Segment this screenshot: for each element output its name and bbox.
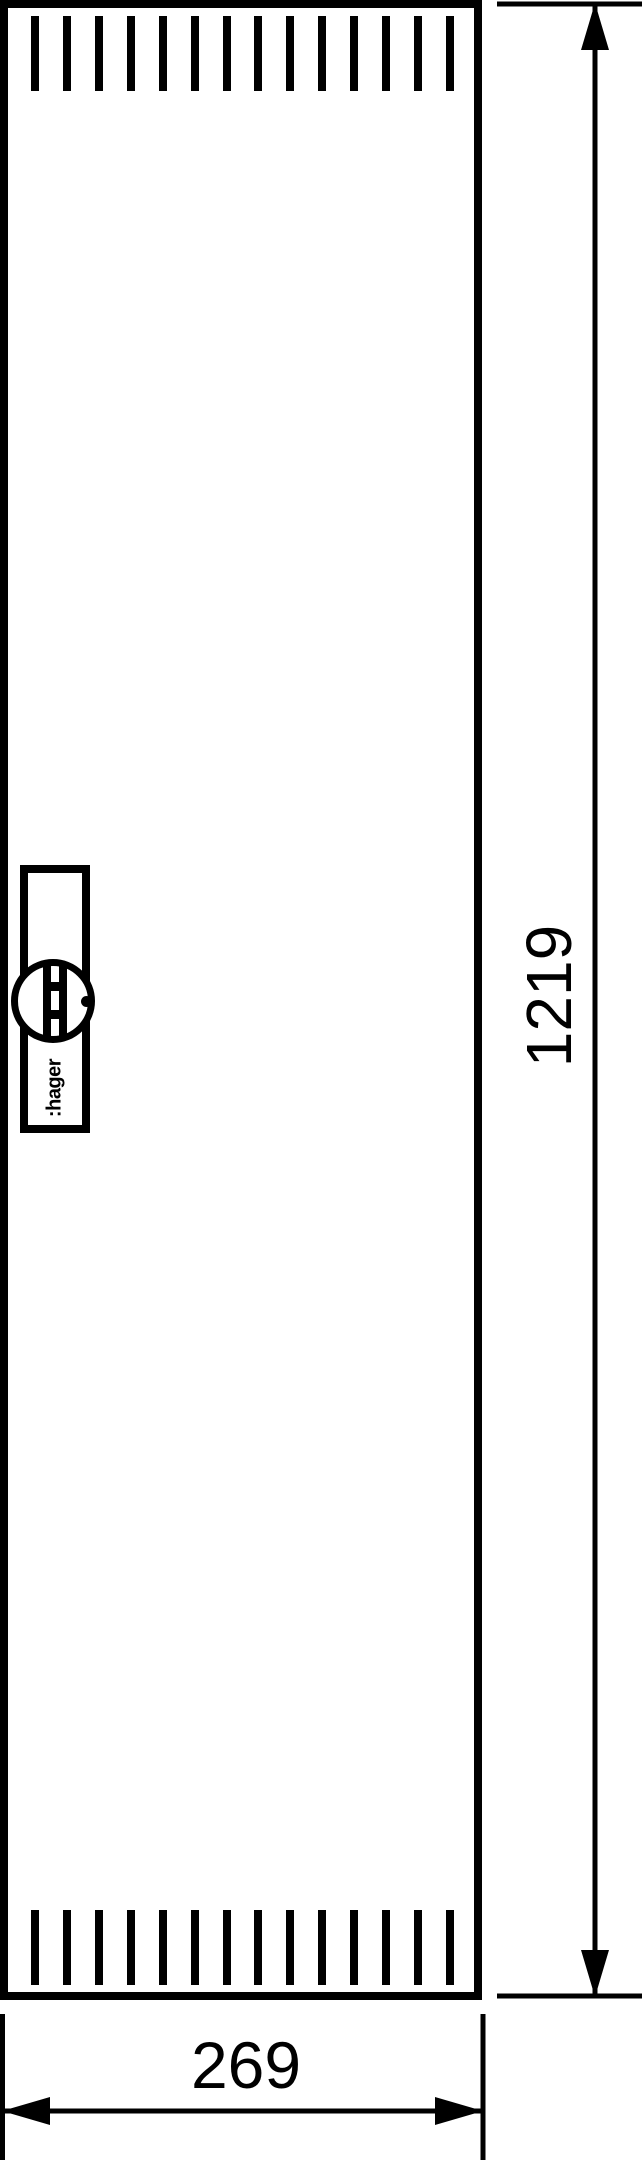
width-dimension-label: 269 — [191, 2032, 301, 2098]
width-dim-left-arrowhead — [2, 2097, 50, 2125]
technical-drawing: :hager 1219 269 — [0, 0, 642, 2160]
width-dim-right-arrowhead — [435, 2097, 483, 2125]
height-dim-down-arrowhead — [581, 1950, 609, 1997]
height-dim-up-arrowhead — [581, 3, 609, 50]
dimension-overlay — [0, 0, 642, 2160]
height-dimension-label: 1219 — [517, 925, 581, 1067]
